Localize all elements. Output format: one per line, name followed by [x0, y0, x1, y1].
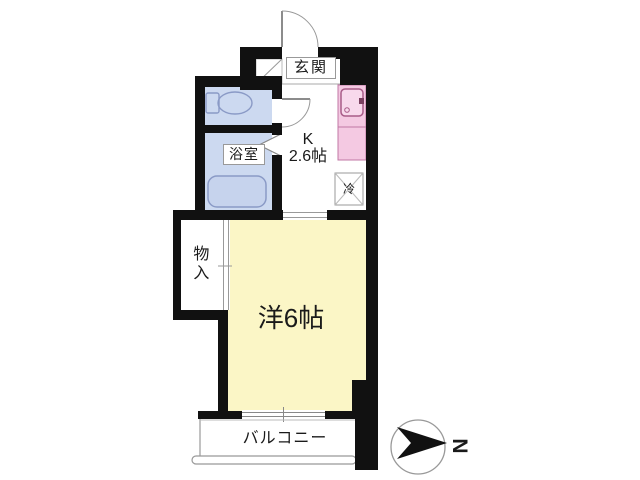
kitchen-type-label: K	[280, 131, 336, 149]
wall-segment	[198, 411, 242, 419]
storage-label: 物入	[187, 238, 209, 290]
wall-segment	[173, 210, 283, 220]
bathroom-label: 浴室	[223, 144, 265, 165]
kitchen-size-label: 2.6帖	[280, 148, 336, 166]
wall-segment	[195, 76, 205, 220]
toilet-icon	[206, 92, 252, 114]
compass-north-label: N	[448, 435, 470, 457]
sliding-door-storage	[218, 220, 232, 310]
sliding-door-kitchen-room	[283, 210, 327, 220]
wall-segment	[352, 380, 378, 419]
floor-plan: 玄関 浴室 K 2.6帖 冷 物入 洋6帖 バルコニー N	[0, 0, 640, 480]
western-room-label: 洋6帖	[222, 303, 360, 335]
wall-segment	[366, 47, 378, 415]
genkan-label: 玄関	[286, 57, 336, 79]
wall-segment	[203, 125, 282, 133]
wall-segment	[327, 210, 378, 220]
compass-icon	[391, 420, 447, 474]
refrigerator-label: 冷	[335, 173, 363, 205]
bathtub-icon	[208, 176, 266, 207]
wall-segment	[355, 419, 378, 470]
wall-segment	[173, 210, 181, 320]
entrance-door-icon	[282, 11, 318, 47]
kitchen-sink-icon	[338, 85, 366, 160]
wall-segment	[195, 76, 282, 87]
balcony-label: バルコニー	[230, 429, 340, 449]
wall-segment	[272, 85, 282, 99]
kitchen-door-icon	[282, 99, 310, 127]
